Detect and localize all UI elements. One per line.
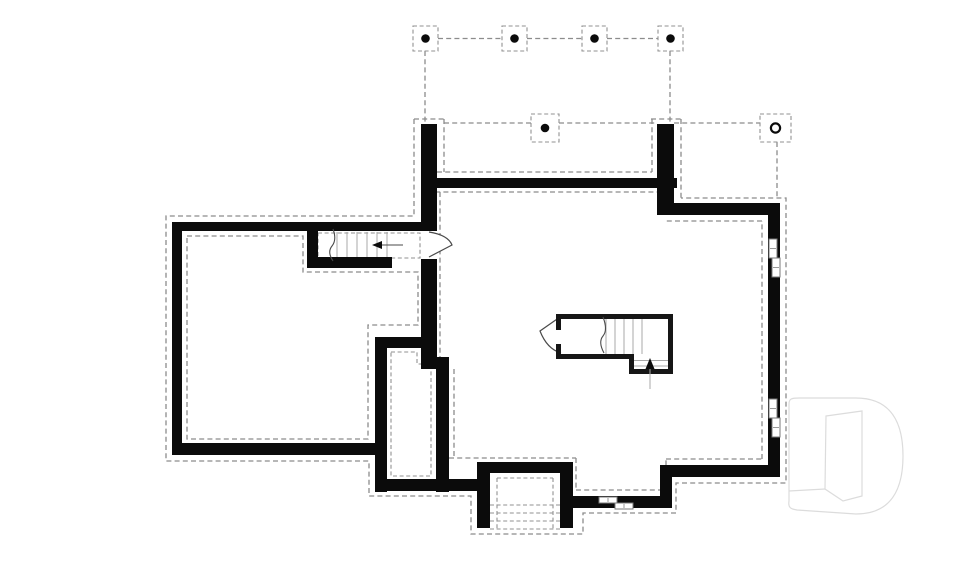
wall-leftroom-bottom: [172, 443, 384, 455]
wall-top-right: [657, 203, 780, 215]
areaway-steps: [490, 478, 560, 530]
stairwell-wall-right: [668, 314, 673, 374]
chase-inner-footing: [391, 352, 431, 476]
wall-porch-right-pier: [657, 124, 674, 215]
column-dot: [666, 34, 675, 43]
stair-break-line: [601, 317, 606, 353]
porch-column-dot: [541, 124, 550, 133]
wall-west-lower: [436, 357, 449, 492]
wall-chase-bottom: [375, 479, 449, 491]
column-grid: [413, 26, 683, 124]
basement-floor-plan: [0, 0, 960, 569]
wall-west-upper: [421, 124, 437, 231]
wall-leftroom-left: [172, 222, 182, 455]
column-dot: [510, 34, 519, 43]
wall-areaway-right: [560, 462, 573, 528]
stair-direction-arrowhead: [646, 358, 655, 369]
watermark: [789, 398, 903, 514]
stair-central: [540, 314, 673, 389]
wall-stair-south: [307, 257, 392, 268]
wall-southeast: [672, 465, 780, 477]
stair-break-line: [330, 229, 335, 261]
watermark-d-base-line: [789, 489, 825, 491]
wall-areaway-top: [477, 462, 573, 473]
wall-chase-left: [375, 337, 387, 492]
corner-column-ring: [771, 123, 780, 132]
stairwell-wall-top: [556, 314, 673, 319]
stairwell-wall-bottom-right: [629, 369, 673, 374]
stair-passage: [330, 229, 452, 261]
stairwell-wall-left-a: [556, 314, 561, 330]
column-dot: [590, 34, 599, 43]
wall-chase-top: [375, 337, 427, 348]
watermark-d-outer: [789, 398, 903, 514]
stair-passage-footing: [318, 233, 420, 258]
stairwell-wall-bottom-left: [556, 354, 634, 359]
floor-plan-page: [0, 0, 960, 569]
foundation-walls: [172, 124, 780, 528]
wall-porch-front: [421, 178, 677, 188]
watermark-d-inner: [825, 411, 862, 501]
wall-leftroom-top: [172, 222, 437, 231]
column-dot: [421, 34, 430, 43]
